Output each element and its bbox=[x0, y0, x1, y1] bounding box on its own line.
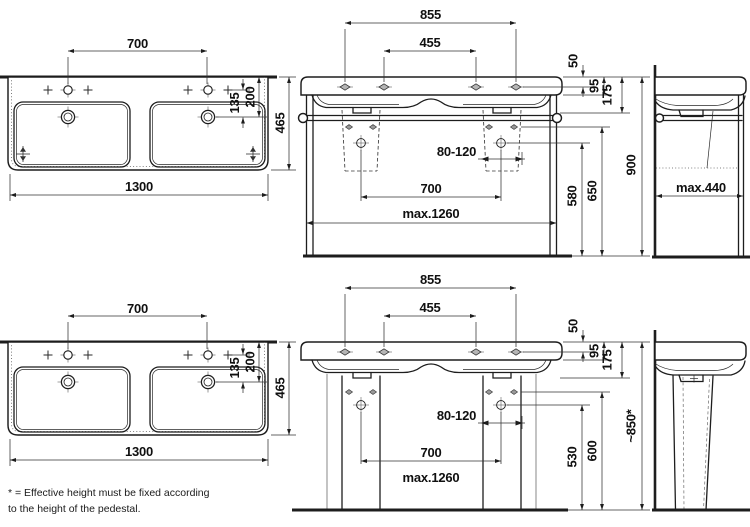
dim-tap-span: 700 bbox=[127, 301, 148, 316]
dim-tap-offset: 135 bbox=[227, 357, 242, 378]
fixing-hole-icon bbox=[370, 125, 377, 130]
dim-tap-offset: 135 bbox=[227, 92, 242, 113]
dim-drain-offset: 200 bbox=[243, 351, 258, 372]
dim-depth: 465 bbox=[273, 112, 288, 133]
dim-max-depth: max.440 bbox=[676, 180, 726, 195]
rail-end-cap bbox=[553, 114, 562, 123]
rail-end-cap bbox=[299, 114, 308, 123]
drain-center-icon bbox=[493, 397, 509, 413]
dim-bracket-height: 600 bbox=[585, 440, 600, 461]
dim-drain-height: 530 bbox=[565, 446, 580, 467]
dim-tap-span: 700 bbox=[127, 36, 148, 51]
footnote-line-1: * = Effective height must be fixed accor… bbox=[8, 487, 210, 499]
dim-depth: 465 bbox=[273, 377, 288, 398]
fixing-hole-icon bbox=[511, 390, 518, 395]
dim-inner-holes: 455 bbox=[419, 35, 440, 50]
basin-slab-side bbox=[655, 77, 746, 95]
dim-bracket-height: 650 bbox=[585, 180, 600, 201]
dim-width: 1300 bbox=[125, 179, 153, 194]
fixing-hole-icon bbox=[486, 125, 493, 130]
front-view-pedestal: 855 455 80-120 700 max.1260 50 95 175 53… bbox=[292, 272, 650, 510]
dim-edge-to-holes: 50 bbox=[566, 54, 581, 68]
drain-boss-right bbox=[493, 373, 511, 379]
dim-drain-span: 700 bbox=[420, 181, 441, 196]
dim-overall-height: ~850* bbox=[624, 408, 639, 442]
basin-underside-side bbox=[656, 96, 745, 110]
dim-edge-to-holes: 50 bbox=[566, 319, 581, 333]
basin-slab-side bbox=[655, 342, 746, 360]
dim-drain-span: 700 bbox=[420, 445, 441, 460]
basin-underside bbox=[312, 360, 551, 373]
dim-drain-play: 80-120 bbox=[437, 144, 476, 159]
plan-view-pedestal: 700 1300 135 200 465 bbox=[0, 301, 296, 466]
drain-center-icon bbox=[353, 135, 369, 151]
dim-max-width: max.1260 bbox=[403, 470, 460, 485]
front-view-console: 855 455 80-120 700 max.1260 50 95 175 58… bbox=[299, 7, 651, 256]
footnote-line-2: to the height of the pedestal. bbox=[8, 503, 141, 515]
drain-boss-left bbox=[353, 108, 371, 114]
fixing-hole-icon bbox=[346, 125, 353, 130]
drain-boss-left bbox=[353, 373, 371, 379]
fixing-hole-icon bbox=[486, 390, 493, 395]
rail-wall-bracket bbox=[656, 114, 664, 122]
washbasin-dimension-drawing: 700 1300 135 200 465 bbox=[0, 0, 750, 527]
hidden-drain-right bbox=[483, 110, 521, 171]
basin-underside bbox=[312, 95, 551, 108]
basin-slab bbox=[301, 77, 562, 95]
dim-drain-play: 80-120 bbox=[437, 408, 476, 423]
dim-rail-drop: 175 bbox=[600, 349, 615, 370]
dim-inner-holes: 455 bbox=[419, 300, 440, 315]
basin-underside-side bbox=[656, 361, 745, 375]
technical-drawing-page: 700 1300 135 200 465 bbox=[0, 0, 750, 527]
side-view-pedestal bbox=[652, 330, 750, 510]
drain-center-icon bbox=[353, 397, 369, 413]
drain-center-icon bbox=[493, 135, 509, 151]
fixing-hole-icon bbox=[346, 390, 353, 395]
fixing-hole-icon bbox=[511, 125, 518, 130]
plan-view-console: 700 1300 135 200 465 bbox=[0, 36, 296, 201]
side-view-console: max.440 bbox=[652, 65, 750, 257]
fixing-hole-icon bbox=[370, 390, 377, 395]
dim-width: 1300 bbox=[125, 444, 153, 459]
dim-rail-drop: 175 bbox=[600, 84, 615, 105]
dim-drain-offset: 200 bbox=[243, 86, 258, 107]
dim-outer-holes: 855 bbox=[420, 272, 441, 287]
washbasin-outline bbox=[8, 342, 268, 435]
dim-overall-height: 900 bbox=[624, 154, 639, 175]
dim-max-width: max.1260 bbox=[403, 206, 460, 221]
basin-slab bbox=[301, 342, 562, 360]
drain-boss-right bbox=[493, 108, 511, 114]
dim-drain-height: 580 bbox=[565, 185, 580, 206]
dim-outer-holes: 855 bbox=[420, 7, 441, 22]
washbasin-outline bbox=[8, 77, 268, 170]
pedestal-side bbox=[673, 375, 676, 510]
